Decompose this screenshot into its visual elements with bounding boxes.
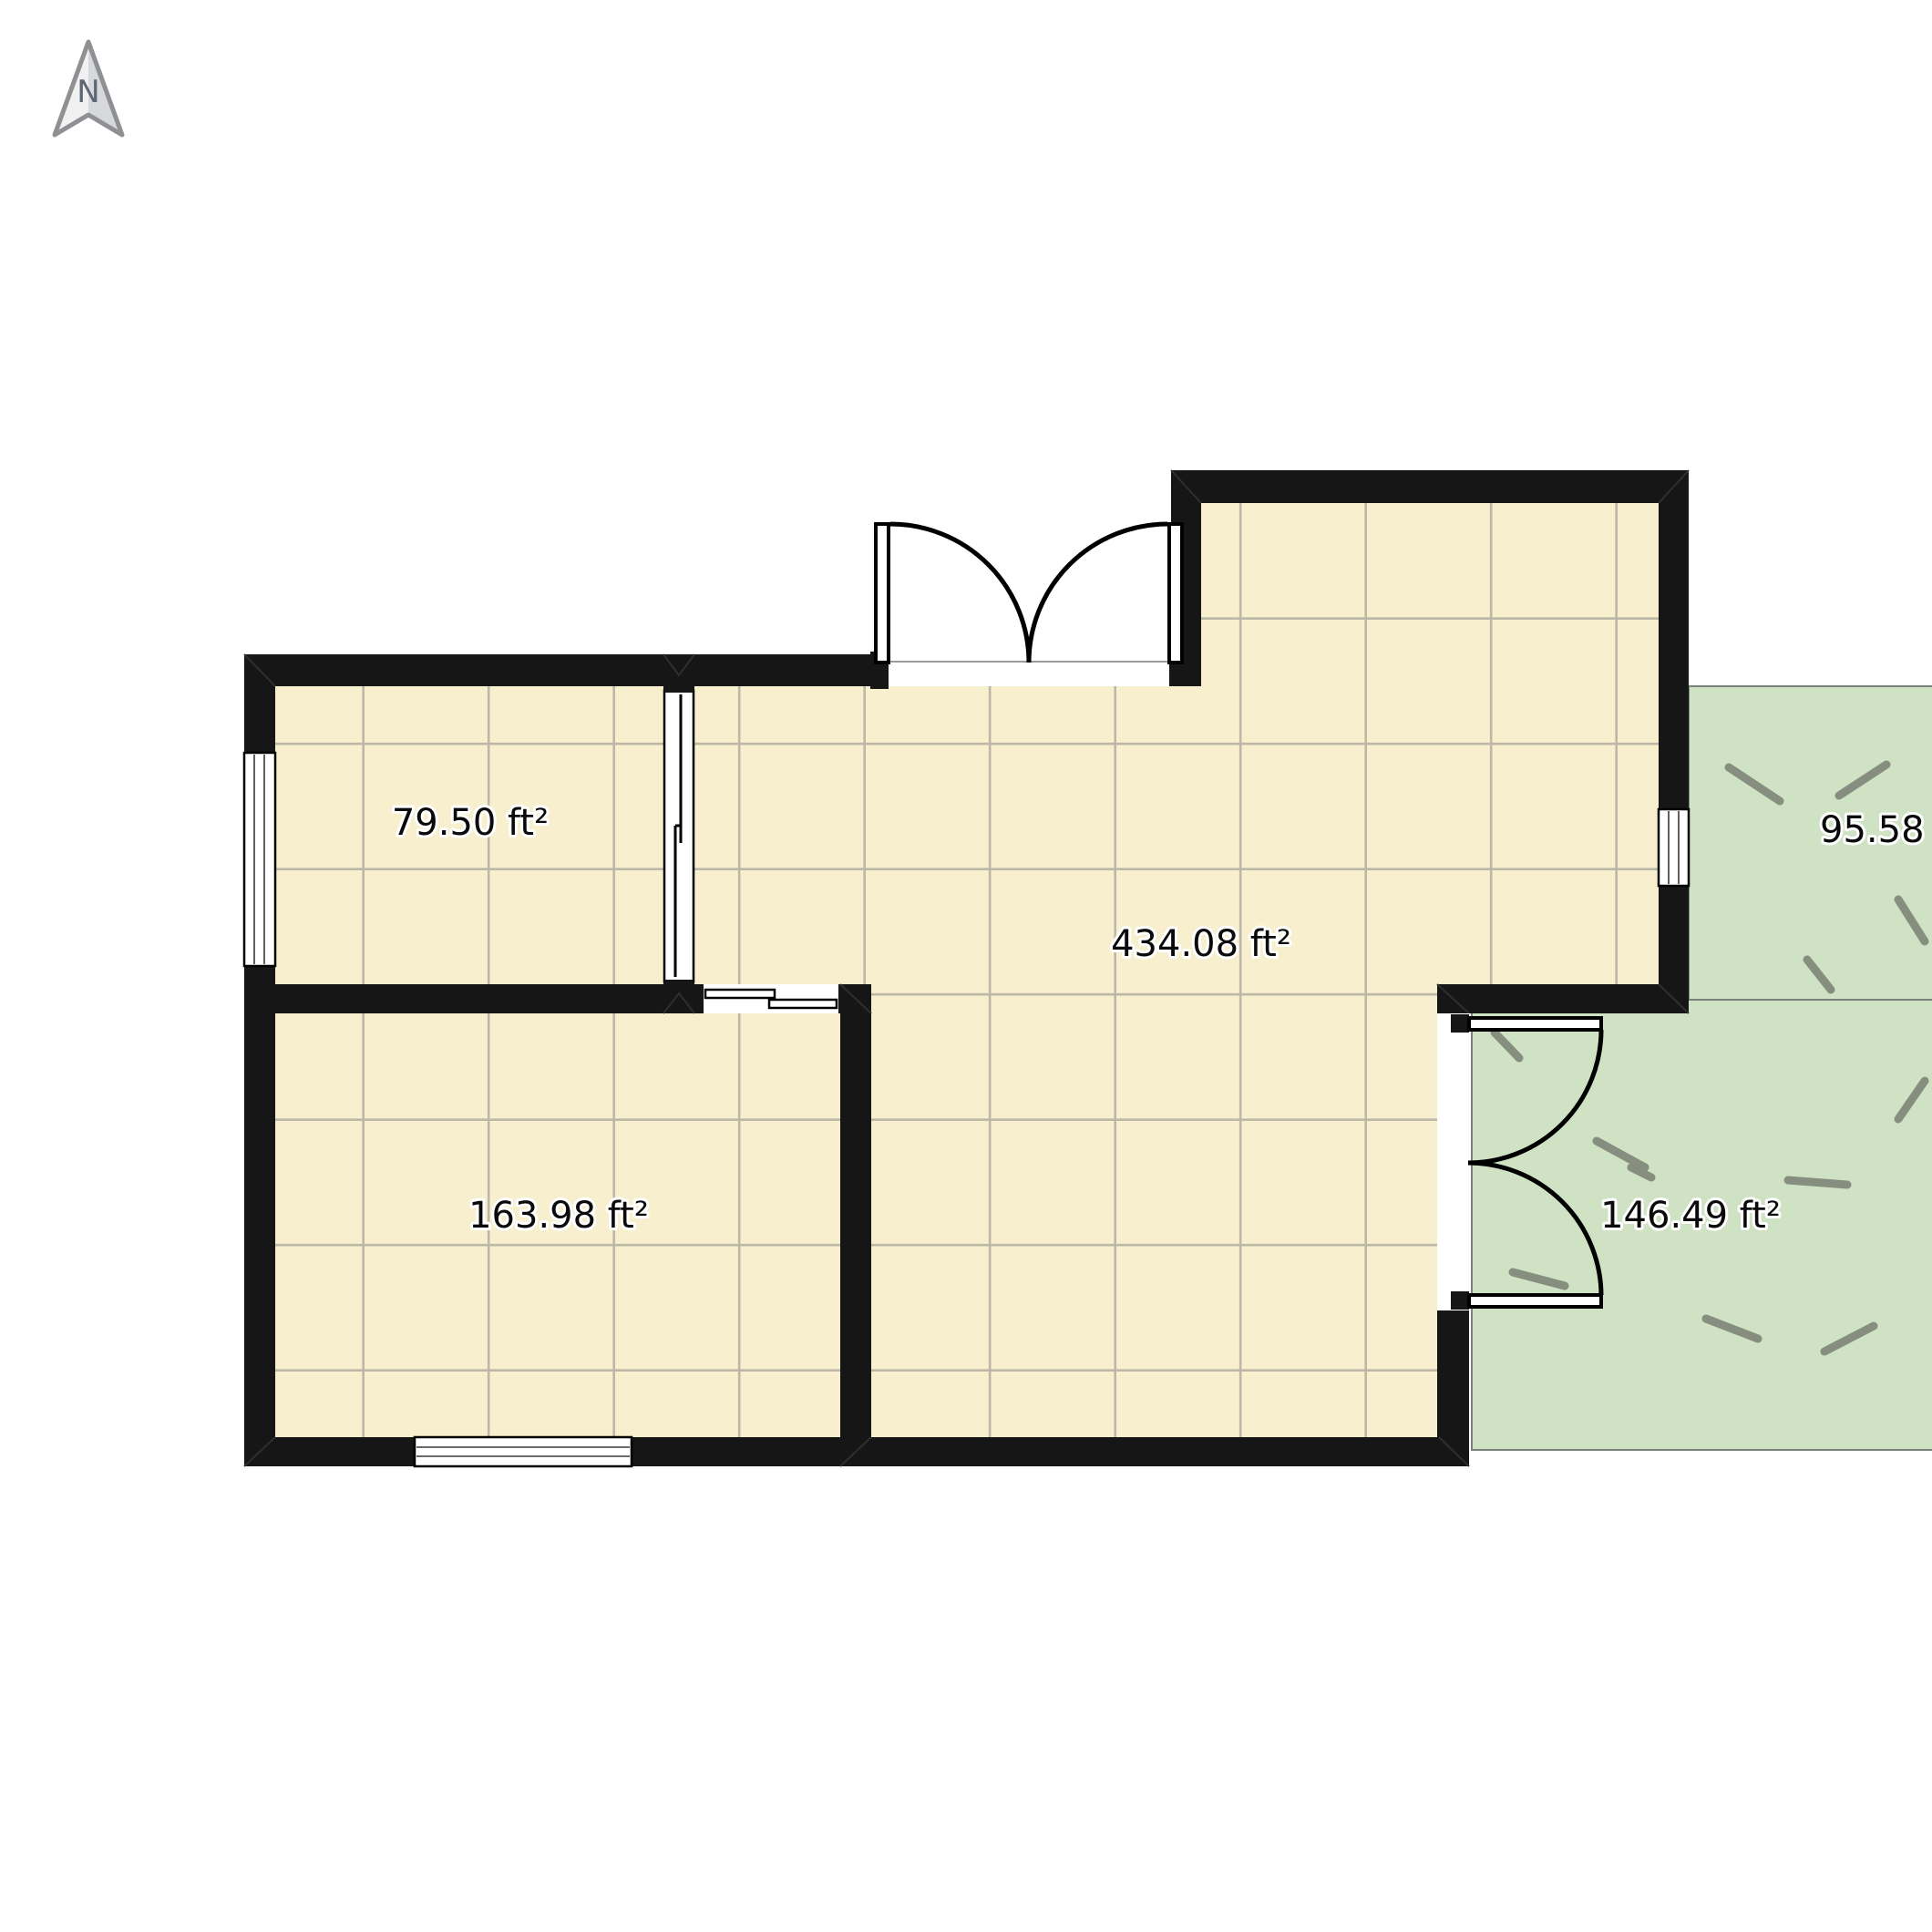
window-partition-sliding[interactable]: [664, 686, 694, 986]
window-left-wall[interactable]: [244, 753, 275, 966]
wall-patio-top[interactable]: [1437, 984, 1689, 1013]
grass-dash: [1788, 1180, 1847, 1185]
wall-interior-vertical[interactable]: [840, 984, 871, 1466]
window-right-wall[interactable]: [1659, 809, 1689, 886]
area-label-patio: 146.49 ft²: [1600, 1195, 1781, 1237]
floor-plan-canvas: N 79.50 ft² 434.08 ft² 163.98 ft² 146.49…: [0, 0, 1932, 1932]
north-arrow: N: [55, 42, 122, 135]
sliding-door-interior[interactable]: [704, 984, 838, 1013]
area-label-top-left-room: 79.50 ft²: [392, 802, 549, 844]
area-label-side-yard: 95.58 ft²: [1820, 809, 1932, 851]
area-label-bottom-left-room: 163.98 ft²: [468, 1195, 649, 1237]
door-swing-arc: [890, 524, 1029, 663]
double-door-top[interactable]: [876, 524, 1182, 686]
area-label-living-hall: 434.08 ft²: [1111, 923, 1291, 965]
wall-right[interactable]: [1659, 470, 1689, 1013]
door-swing-arc: [1029, 524, 1167, 663]
window-bottom-wall[interactable]: [415, 1437, 632, 1466]
wall-top-upper[interactable]: [1171, 470, 1689, 503]
north-letter: N: [77, 74, 99, 110]
